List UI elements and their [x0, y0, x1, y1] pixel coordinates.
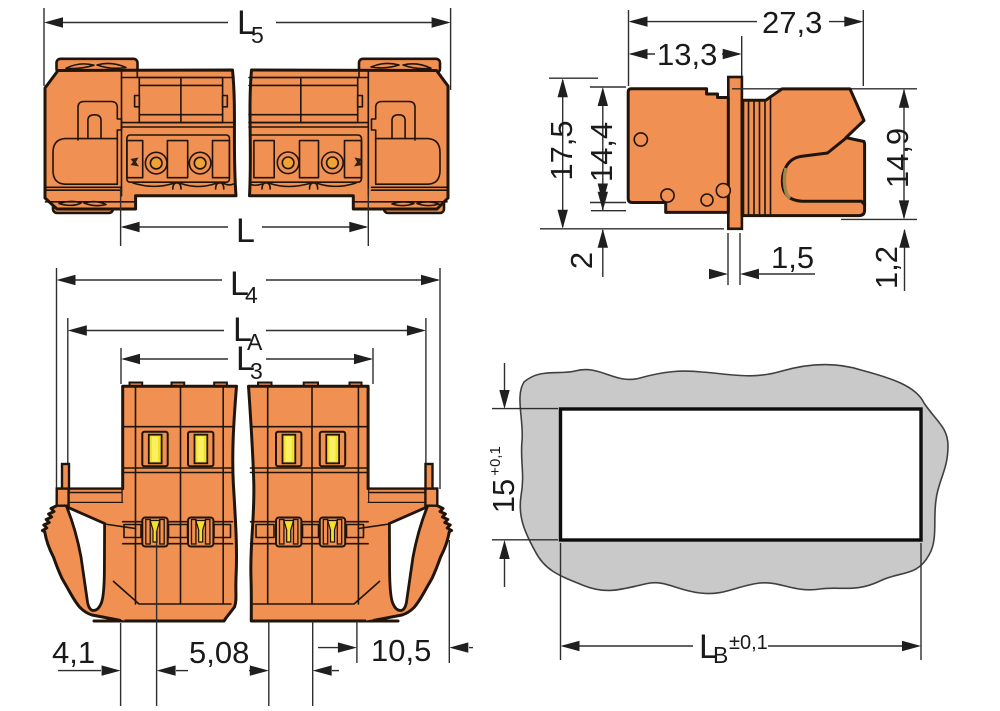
svg-text:2: 2 [564, 252, 599, 269]
svg-text:17,5: 17,5 [544, 120, 579, 180]
svg-text:10,5: 10,5 [371, 633, 431, 668]
svg-text:4,1: 4,1 [52, 635, 95, 670]
svg-text:±0,1: ±0,1 [729, 632, 768, 654]
svg-text:13,3: 13,3 [657, 37, 717, 72]
svg-text:B: B [713, 642, 728, 668]
svg-text:5,08: 5,08 [189, 635, 249, 670]
svg-text:+0,1: +0,1 [487, 446, 504, 476]
svg-text:1,2: 1,2 [869, 246, 904, 289]
svg-text:27,3: 27,3 [762, 5, 822, 40]
svg-text:5: 5 [251, 22, 264, 48]
svg-text:14,4: 14,4 [584, 122, 619, 182]
svg-text:14,9: 14,9 [880, 128, 915, 188]
svg-text:4: 4 [245, 282, 258, 308]
svg-text:1,5: 1,5 [771, 240, 814, 275]
svg-text:15: 15 [486, 479, 521, 513]
svg-text:L: L [236, 212, 255, 250]
svg-text:3: 3 [250, 358, 263, 384]
